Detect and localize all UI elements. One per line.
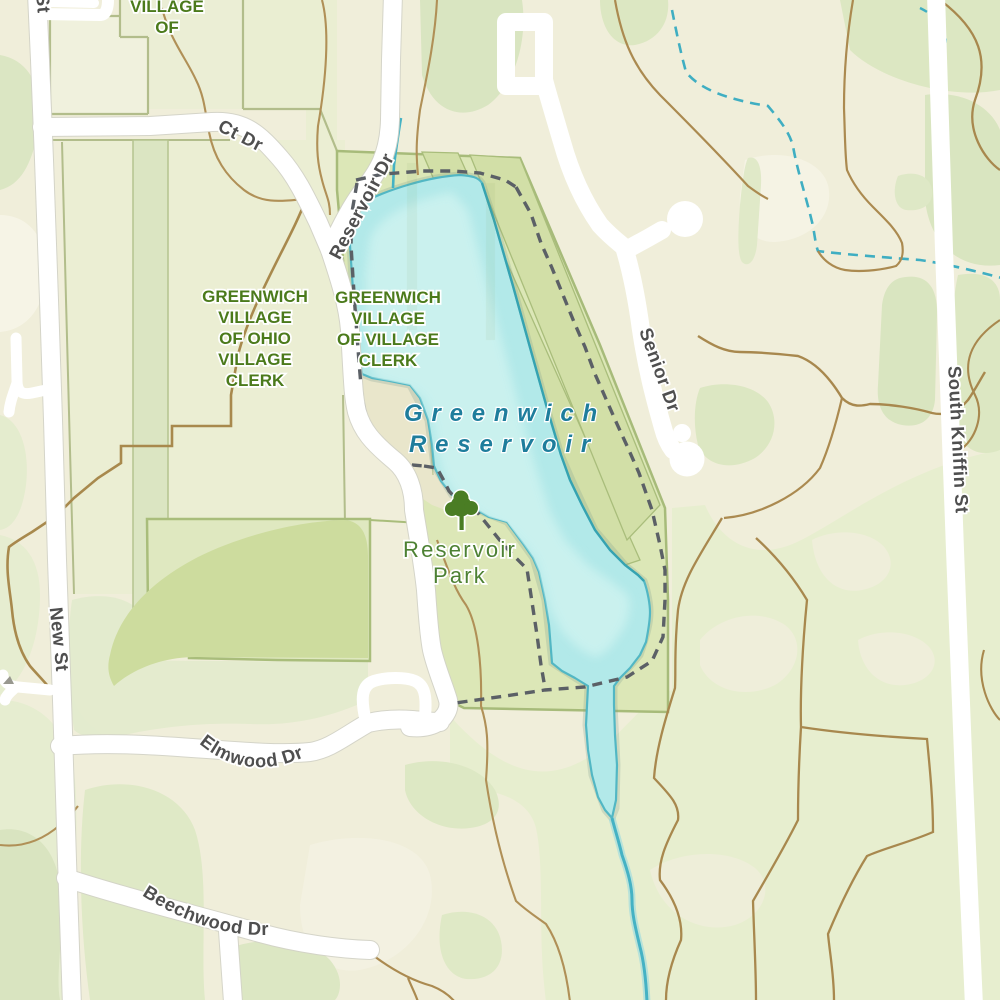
svg-text:Reservoir: Reservoir [409, 431, 599, 458]
svg-text:OF VILLAGE: OF VILLAGE [337, 330, 439, 349]
svg-text:GREENWICH: GREENWICH [202, 287, 308, 306]
svg-text:CLERK: CLERK [359, 351, 418, 370]
svg-text:St: St [32, 0, 55, 14]
svg-text:OF OHIO: OF OHIO [219, 329, 291, 348]
svg-text:Greenwich: Greenwich [404, 400, 606, 427]
svg-text:VILLAGE: VILLAGE [218, 350, 292, 369]
svg-text:OF: OF [155, 18, 179, 37]
svg-text:GREENWICH: GREENWICH [335, 288, 441, 307]
svg-text:VILLAGE: VILLAGE [218, 308, 292, 327]
svg-text:Park: Park [433, 563, 487, 588]
svg-text:CLERK: CLERK [226, 371, 285, 390]
svg-text:Reservoir: Reservoir [403, 537, 517, 562]
svg-text:VILLAGE: VILLAGE [130, 0, 204, 16]
svg-text:VILLAGE: VILLAGE [351, 309, 425, 328]
